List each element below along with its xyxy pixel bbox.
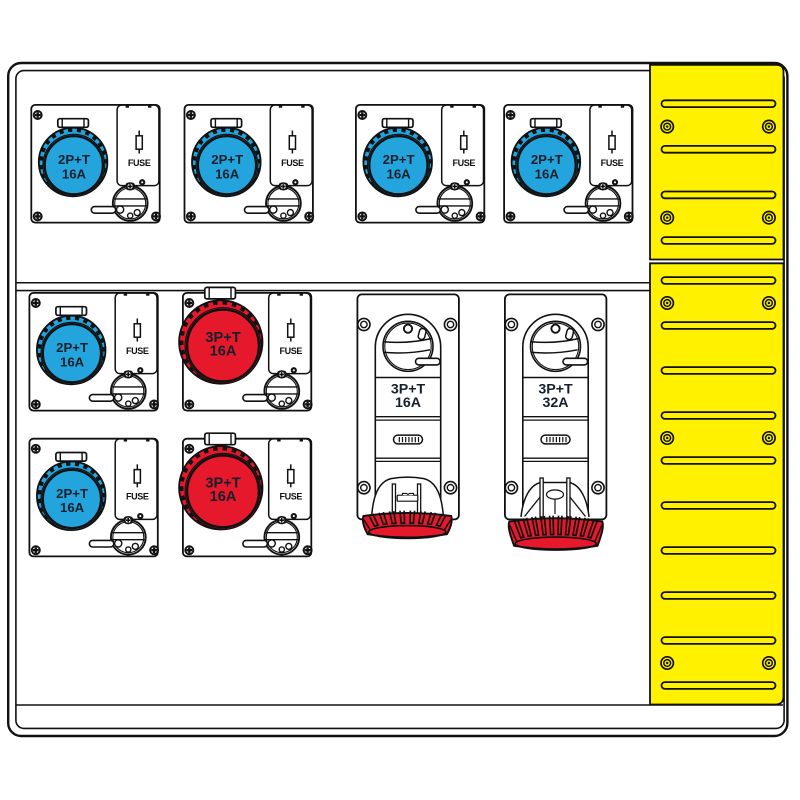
svg-text:16A: 16A <box>395 395 421 411</box>
svg-text:32A: 32A <box>542 395 568 411</box>
